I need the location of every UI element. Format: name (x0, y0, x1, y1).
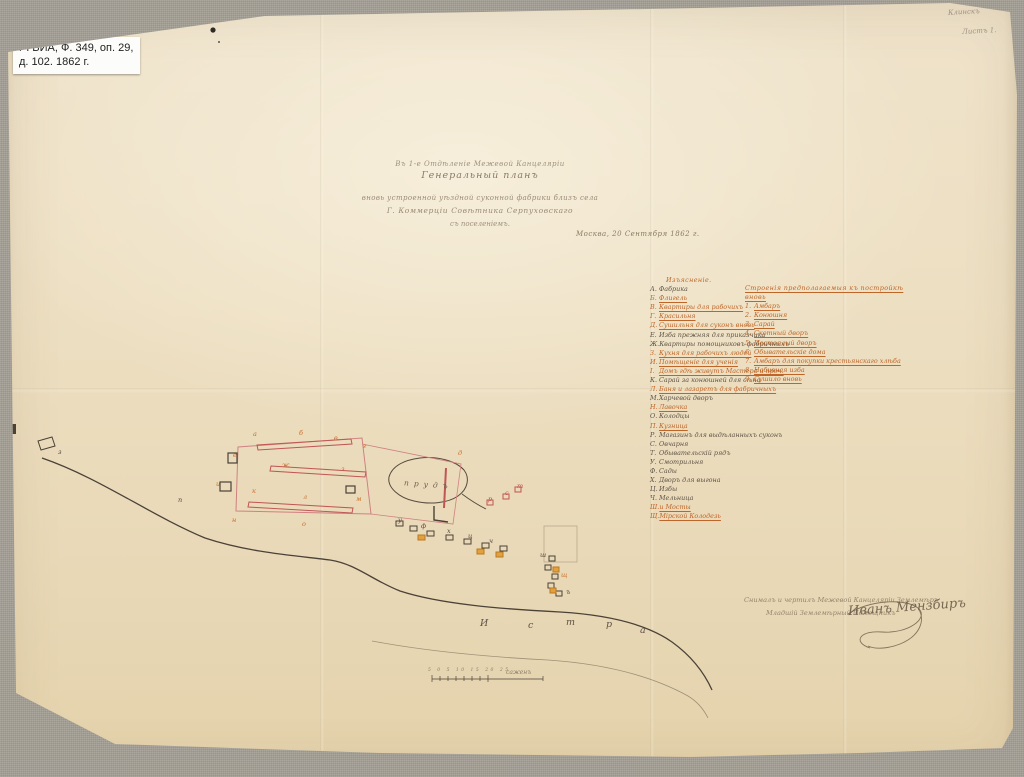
scale-bar (432, 675, 543, 682)
map-drawing (0, 0, 1024, 777)
map-reference-letter: д (458, 450, 462, 456)
legend-item: 6.Обывательскіе дома (745, 348, 915, 357)
legend-item: Т.Обывательскій рядъ (650, 449, 785, 458)
factory-complex (220, 438, 521, 524)
legend-item: 8.Набивная изба (745, 366, 915, 375)
map-reference-letter: о (302, 521, 306, 527)
legend-item: 5.Постоялый дворъ (745, 339, 915, 348)
village-houses (396, 521, 577, 596)
map-reference-letter: с (505, 490, 509, 496)
legend-item: 4.Скотный дворъ (745, 329, 915, 338)
map-reference-letter: в (334, 435, 338, 441)
map-reference-letter: и (216, 481, 220, 487)
legend-item: 3.Сарай (745, 320, 915, 329)
dateline: Москва, 20 Сентября 1862 г. (576, 230, 700, 238)
map-reference-letter: б (299, 430, 303, 436)
legend-item: Х.Дворъ для выгона (650, 476, 785, 485)
map-reference-letter: з (341, 466, 345, 472)
map-reference-letter: к (252, 488, 256, 494)
river-lower-bank-line (372, 641, 708, 718)
legend-item: Л.Баня и лазаретъ для фабричныхъ (650, 385, 785, 394)
archive-label-line1: РГВИА, Ф. 349, оп. 29, (19, 41, 133, 55)
legend-item: 1.Амбаръ (745, 302, 915, 311)
legend-item: 9.Сушило вновь (745, 375, 915, 384)
map-reference-letter: р (488, 496, 492, 502)
map-reference-letter: н (232, 517, 236, 523)
river-name-letter: с (528, 620, 533, 631)
title-block: Въ 1-е Отдѣленіе Межевой Канцеляріи Гене… (340, 160, 620, 228)
legend-item: С.Овчарня (650, 440, 785, 449)
map-reference-letter: а (253, 431, 257, 437)
legend-item: 7.Амбаръ для покупки крестьянскаго хлѣба (745, 357, 915, 366)
legend-right-column: Строенія предполагаемыя къ постройкѣ вно… (745, 284, 915, 384)
outbuilding (220, 482, 231, 491)
archive-label-line2: д. 102. 1862 г. (19, 55, 133, 69)
corner-note-1: Клинскъ (948, 7, 980, 17)
legend-item: Ш.и Мосты (650, 503, 785, 512)
title-line-4: Г. Коммерціи Совѣтника Серпуховскаго (340, 206, 620, 215)
map-reference-letter: щ (561, 572, 568, 578)
river-name-letter: И (480, 618, 488, 629)
map-reference-letter: з (58, 449, 62, 455)
ink-speck (218, 41, 220, 43)
map-reference-letter: г (363, 443, 366, 449)
map-reference-letter: т (517, 483, 523, 489)
map-reference-letter: м (356, 496, 361, 502)
map-reference-letter: ж (282, 462, 289, 468)
legend-right-header: Строенія предполагаемыя къ постройкѣ вно… (745, 284, 915, 302)
map-reference-letter: ц (468, 533, 473, 539)
scale-unit-label: саженъ (506, 669, 531, 676)
outbuilding (346, 486, 355, 493)
title-line-3: вновь устроенной уѣздной суконной фабрик… (340, 194, 620, 202)
map-reference-letter: ъ (566, 589, 570, 595)
legend-item: П.Кузница (650, 422, 785, 431)
map-reference-letter: е (233, 452, 237, 458)
river-name-letter: т (566, 617, 575, 628)
map-reference-letter: л (303, 494, 307, 500)
archive-label: РГВИА, Ф. 349, оп. 29, д. 102. 1862 г. (13, 37, 140, 74)
legend-item: 2.Конюшня (745, 311, 915, 320)
map-sheet: РГВИА, Ф. 349, оп. 29, д. 102. 1862 г. К… (0, 0, 1024, 777)
river-upper-bank-line (42, 458, 712, 690)
map-reference-letter: п (178, 497, 182, 503)
legend-item: Щ.Мірской Колодезь (650, 512, 785, 521)
legend-item: Ф.Сады (650, 467, 785, 476)
river-name-letter: а (640, 625, 646, 636)
title-line-1: Въ 1-е Отдѣленіе Межевой Канцеляріи (340, 160, 620, 168)
scale-numbers: 5 0 5 10 15 20 25 (428, 668, 511, 673)
map-reference-letter: ч (489, 538, 493, 544)
legend-right-items: 1.Амбаръ2.Конюшня3.Сарай4.Скотный дворъ5… (745, 302, 915, 384)
ink-spot (210, 27, 215, 32)
legend-item: Р.Магазинъ для выдѣланныхъ суконъ (650, 431, 785, 440)
title-line-5: съ поселеніемъ. (340, 220, 620, 228)
map-reference-letter: х (447, 528, 451, 534)
legend-item: Н.Лавочка (650, 403, 785, 412)
boundary-symbols (8, 424, 55, 450)
map-reference-letter: у (398, 517, 402, 523)
legend-item: Ч.Мельница (650, 494, 785, 503)
river-name-letter: р (606, 619, 612, 630)
legend-item: У.Смотрильня (650, 458, 785, 467)
legend-item: М.Харчевой дворъ (650, 394, 785, 403)
scan-backdrop: РГВИА, Ф. 349, оп. 29, д. 102. 1862 г. К… (0, 0, 1024, 777)
map-reference-letter: ш (540, 552, 546, 558)
map-reference-letter: ф (421, 523, 426, 529)
title-line-2: Генеральный планъ (340, 170, 620, 181)
legend-item: О.Колодцы (650, 412, 785, 421)
legend-item: Ц.Избы (650, 485, 785, 494)
